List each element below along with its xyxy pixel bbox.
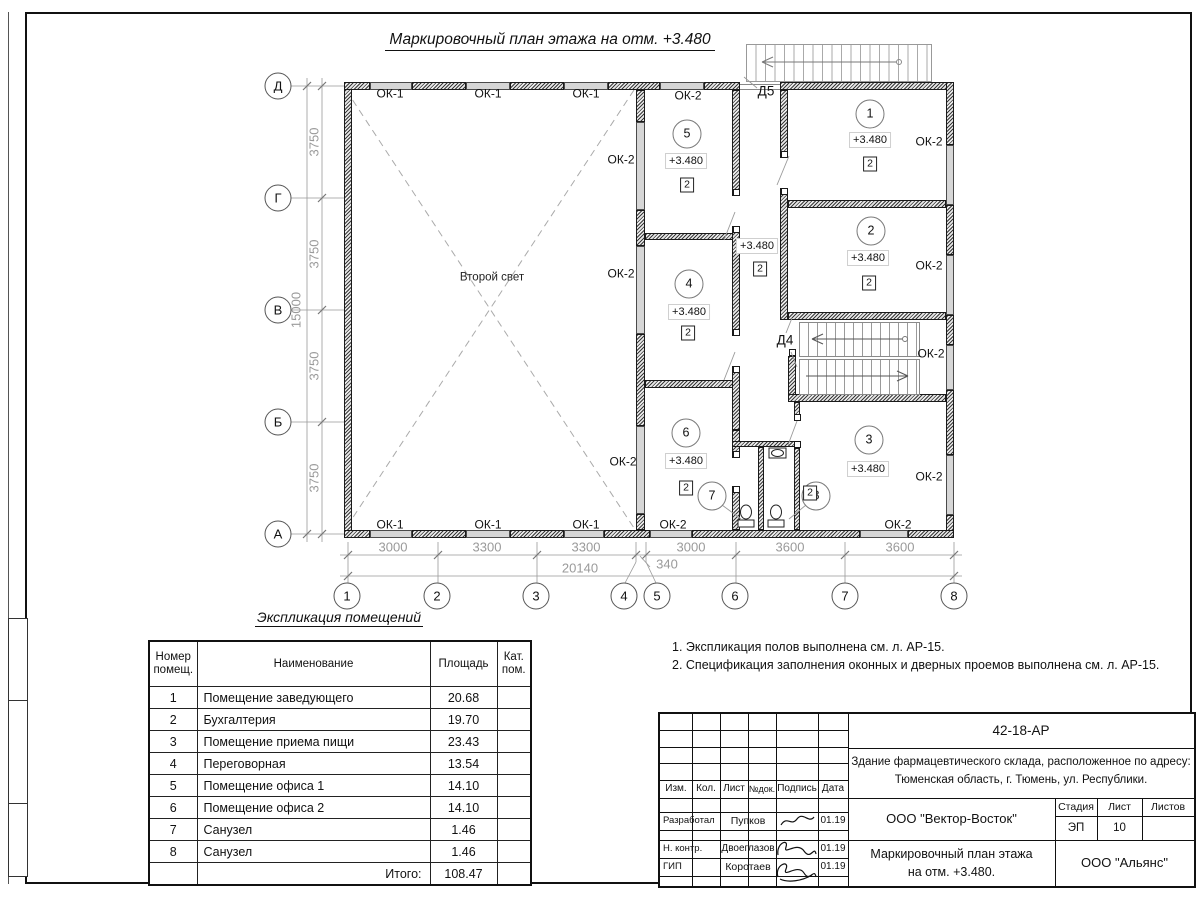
- room-number-cell: 6: [149, 797, 197, 819]
- frame-margin-cell: [8, 700, 28, 805]
- window-mark-label: ОК-2: [916, 471, 943, 484]
- wall-segment: [645, 233, 740, 240]
- door-mark-label: Д5: [758, 85, 775, 98]
- window-mark-label: ОК-1: [475, 519, 502, 532]
- door-mark-label: Д4: [777, 334, 794, 347]
- room-area-cell: 1.46: [430, 819, 497, 841]
- wall-segment: [636, 514, 645, 530]
- window-mark-label: ОК-1: [573, 519, 600, 532]
- room-name-cell: Помещение офиса 1: [197, 775, 430, 797]
- room-number-cell: 2: [149, 709, 197, 731]
- tb-name-developer: Пупков: [720, 812, 776, 830]
- dimension-value: 340: [656, 558, 678, 571]
- dimension-value: 3750: [308, 240, 321, 269]
- room-number-cell: 7: [149, 819, 197, 841]
- window-mark-label: ОК-2: [918, 348, 945, 361]
- tb-date-developer: 01.19: [818, 812, 848, 830]
- wall-segment: [645, 380, 740, 388]
- tb-address-line2: Тюменская область, г. Тюмень, ул. Респуб…: [850, 772, 1192, 788]
- room-number-cell: 1: [149, 687, 197, 709]
- table-total-row: Итого: 108.47: [149, 863, 531, 886]
- room-number-circle: 5: [673, 120, 702, 149]
- stair-flight-upper: [799, 322, 920, 357]
- window-mark-label: ОК-2: [660, 519, 687, 532]
- room-area-cell: 1.46: [430, 841, 497, 863]
- title-block: Изм. Кол. Лист №док. Подпись Дата Разраб…: [658, 712, 1196, 888]
- tb-address-line1: Здание фармацевтического склада, располо…: [850, 754, 1192, 770]
- room-area-cell: 23.43: [430, 731, 497, 753]
- tb-col-kol: Кол.: [692, 780, 720, 798]
- tb-col-data: Дата: [818, 780, 848, 798]
- room-category-cell: [497, 819, 531, 841]
- door-jamb: [789, 349, 796, 356]
- dimension-value: 15000: [290, 292, 303, 328]
- tb-date-gip: 01.19: [818, 858, 848, 876]
- wall-segment: [780, 90, 788, 158]
- dimension-value: 3000: [677, 541, 706, 554]
- elevation-mark: +3.480: [668, 304, 710, 320]
- table-header-row: Номер помещ. Наименование Площадь Кат. п…: [149, 641, 531, 687]
- dimension-value: 3300: [473, 541, 502, 554]
- stair-flight-lower: [799, 359, 920, 395]
- window-mark-label: ОК-1: [377, 519, 404, 532]
- axis-circle: 6: [722, 583, 749, 610]
- room-category-cell: [497, 797, 531, 819]
- tb-col-podpis: Подпись: [776, 780, 818, 798]
- window-segment: [946, 145, 954, 205]
- wall-segment: [758, 447, 764, 530]
- room-name-cell: Санузел: [197, 841, 430, 863]
- col-header-category: Кат. пом.: [497, 641, 531, 687]
- wall-segment: [704, 82, 740, 90]
- axis-circle: 5: [644, 583, 671, 610]
- room-number-circle: 2: [857, 217, 886, 246]
- tb-drawing-title-line1: Маркировочный план этажа: [848, 846, 1055, 862]
- room-number-cell: 5: [149, 775, 197, 797]
- room-category-cell: [497, 841, 531, 863]
- room-number-circle: 6: [672, 419, 701, 448]
- axis-circle: 8: [941, 583, 968, 610]
- axis-circle: Д: [265, 73, 292, 100]
- wall-segment: [780, 82, 954, 90]
- wall-segment: [344, 530, 370, 538]
- drawing-sheet: { "sheet": { "plan_title": "Маркировочны…: [0, 0, 1200, 900]
- room-category-cell: [497, 687, 531, 709]
- second-light-label: Второй свет: [457, 272, 527, 285]
- wall-segment: [732, 366, 740, 430]
- category-mark: 2: [863, 157, 877, 172]
- window-mark-label: ОК-2: [608, 154, 635, 167]
- wall-segment: [794, 448, 800, 530]
- signature: [772, 857, 818, 883]
- room-category-cell: [497, 753, 531, 775]
- wall-segment: [636, 90, 645, 122]
- wall-segment: [908, 530, 954, 538]
- door-jamb: [733, 226, 740, 233]
- tb-sheets-value: [1142, 816, 1194, 840]
- room-category-cell: [497, 731, 531, 753]
- window-mark-label: ОК-2: [675, 90, 702, 103]
- table-row: 4 Переговорная 13.54: [149, 753, 531, 775]
- window-mark-label: ОК-1: [573, 88, 600, 101]
- room-name-cell: Бухгалтерия: [197, 709, 430, 731]
- axis-circle: 2: [424, 583, 451, 610]
- tb-sheet-label: Лист: [1097, 798, 1142, 816]
- notes: 1. Экспликация полов выполнена см. л. АР…: [672, 639, 1200, 674]
- room-area-cell: 20.68: [430, 687, 497, 709]
- frame-margin-cell: [8, 618, 28, 702]
- wall-segment: [780, 188, 788, 320]
- room-schedule-table: Номер помещ. Наименование Площадь Кат. п…: [148, 640, 532, 886]
- tb-role-developer: Разработал: [660, 812, 720, 830]
- tb-stage-label: Стадия: [1055, 798, 1097, 816]
- window-mark-label: ОК-2: [916, 260, 943, 273]
- plan-title: Маркировочный план этажа на отм. +3.480: [340, 31, 760, 49]
- note-line: 2. Спецификация заполнения оконных и две…: [672, 657, 1200, 675]
- window-segment: [636, 426, 645, 514]
- window-mark-label: ОК-1: [475, 88, 502, 101]
- room-name-cell: Помещение приема пищи: [197, 731, 430, 753]
- room-area-cell: 14.10: [430, 775, 497, 797]
- wall-segment: [604, 530, 650, 538]
- tb-name-ncontrol: Двоеглазов: [720, 840, 776, 858]
- table-row: 2 Бухгалтерия 19.70: [149, 709, 531, 731]
- tb-sheet-value: 10: [1097, 816, 1142, 840]
- axis-circle: Б: [265, 409, 292, 436]
- door-jamb: [794, 414, 801, 421]
- door-jamb: [781, 188, 788, 195]
- window-segment: [636, 246, 645, 334]
- wall-segment: [692, 530, 860, 538]
- axis-circle: 7: [832, 583, 859, 610]
- wall-segment: [732, 441, 800, 447]
- tb-sheets-label: Листов: [1142, 798, 1194, 816]
- room-area-cell: 19.70: [430, 709, 497, 731]
- door-jamb: [733, 329, 740, 336]
- category-mark: 2: [680, 178, 694, 193]
- tb-company: ООО "Вектор-Восток": [848, 798, 1055, 840]
- col-header-area: Площадь: [430, 641, 497, 687]
- window-segment: [946, 345, 954, 390]
- table-row: 6 Помещение офиса 2 14.10: [149, 797, 531, 819]
- window-mark-label: ОК-2: [610, 456, 637, 469]
- window-mark-label: ОК-2: [885, 519, 912, 532]
- tb-org: ООО "Альянс": [1055, 840, 1194, 886]
- signature: [774, 836, 818, 859]
- total-area: 108.47: [430, 863, 497, 886]
- signature: [778, 813, 816, 829]
- tb-drawing-title-line2: на отм. +3.480.: [848, 864, 1055, 880]
- elevation-mark: +3.480: [847, 461, 889, 477]
- note-line: 1. Экспликация полов выполнена см. л. АР…: [672, 639, 1200, 657]
- wall-segment: [344, 82, 352, 538]
- window-segment: [946, 255, 954, 315]
- wall-segment: [788, 356, 796, 396]
- room-category-cell: [497, 709, 531, 731]
- door-jamb: [781, 151, 788, 158]
- room-number-circle: 7: [698, 482, 727, 511]
- axis-circle: В: [265, 297, 292, 324]
- table-row: 7 Санузел 1.46: [149, 819, 531, 841]
- wall-segment: [946, 82, 954, 145]
- room-area-cell: 14.10: [430, 797, 497, 819]
- room-number-circle: 1: [856, 100, 885, 129]
- table-row: 8 Санузел 1.46: [149, 841, 531, 863]
- dimension-value: 3750: [308, 128, 321, 157]
- elevation-mark: +3.480: [665, 153, 707, 169]
- wall-segment: [412, 82, 466, 90]
- window-mark-label: ОК-2: [916, 136, 943, 149]
- wall-segment: [636, 210, 645, 246]
- dimension-value: 3600: [886, 541, 915, 554]
- door-jamb: [733, 451, 740, 458]
- tb-col-ndok: №док.: [748, 780, 776, 798]
- category-mark: 2: [679, 481, 693, 496]
- room-area-cell: 13.54: [430, 753, 497, 775]
- wall-segment: [788, 200, 946, 208]
- axis-circle: А: [265, 521, 292, 548]
- category-mark: 2: [753, 262, 767, 277]
- dimension-value: 3750: [308, 352, 321, 381]
- col-header-number: Номер помещ.: [149, 641, 197, 687]
- empty-cell: [497, 863, 531, 886]
- tb-role-ncontrol: Н. контр.: [660, 840, 720, 858]
- door-jamb: [733, 486, 740, 493]
- wall-segment: [732, 90, 740, 196]
- wall-segment: [636, 334, 645, 426]
- door-jamb: [733, 189, 740, 196]
- window-mark-label: ОК-1: [377, 88, 404, 101]
- wall-segment: [412, 530, 466, 538]
- axis-circle: 1: [334, 583, 361, 610]
- room-number-cell: 3: [149, 731, 197, 753]
- col-header-name: Наименование: [197, 641, 430, 687]
- wall-segment: [608, 82, 660, 90]
- wall-segment: [946, 315, 954, 345]
- external-stair: [746, 44, 932, 82]
- door-jamb: [733, 366, 740, 373]
- room-number-circle: 3: [855, 426, 884, 455]
- wall-segment: [510, 530, 564, 538]
- wall-segment: [510, 82, 564, 90]
- room-number-cell: 4: [149, 753, 197, 775]
- elevation-mark: +3.480: [847, 250, 889, 266]
- window-segment: [946, 455, 954, 515]
- tb-role-gip: ГИП: [660, 858, 720, 876]
- wall-segment: [946, 390, 954, 455]
- category-mark: 2: [862, 276, 876, 291]
- empty-cell: [149, 863, 197, 886]
- room-name-cell: Санузел: [197, 819, 430, 841]
- wall-segment: [344, 82, 370, 90]
- wall-segment: [788, 394, 946, 402]
- elevation-mark: +3.480: [736, 238, 778, 254]
- room-name-cell: Помещение заведующего: [197, 687, 430, 709]
- wall-segment: [788, 312, 946, 320]
- dimension-value: 3750: [308, 464, 321, 493]
- dimension-value: 20140: [562, 562, 598, 575]
- tb-stage-value: ЭП: [1055, 816, 1097, 840]
- elevation-mark: +3.480: [849, 132, 891, 148]
- tb-doc-number: 42-18-АР: [848, 714, 1194, 748]
- axis-circle: 3: [523, 583, 550, 610]
- table-row: 1 Помещение заведующего 20.68: [149, 687, 531, 709]
- tb-name-gip: Коротаев: [720, 858, 776, 876]
- window-segment: [636, 122, 645, 210]
- table-row: 3 Помещение приема пищи 23.43: [149, 731, 531, 753]
- tb-col-izm: Изм.: [660, 780, 692, 798]
- dimension-value: 3000: [379, 541, 408, 554]
- door-jamb: [794, 441, 801, 448]
- room-category-cell: [497, 775, 531, 797]
- axis-circle: Г: [265, 185, 292, 212]
- category-mark: 2: [681, 326, 695, 341]
- table-row: 5 Помещение офиса 1 14.10: [149, 775, 531, 797]
- frame-margin-cell: [8, 803, 28, 877]
- tb-col-list: Лист: [720, 780, 748, 798]
- room-name-cell: Помещение офиса 2: [197, 797, 430, 819]
- dimension-value: 3300: [572, 541, 601, 554]
- room-number-cell: 8: [149, 841, 197, 863]
- axis-circle: 4: [611, 583, 638, 610]
- tb-date-ncontrol: 01.19: [818, 840, 848, 858]
- category-mark: 2: [803, 486, 817, 501]
- room-name-cell: Переговорная: [197, 753, 430, 775]
- wall-segment: [946, 205, 954, 255]
- total-label: Итого:: [197, 863, 430, 886]
- room-schedule-title: Экспликация помещений: [148, 609, 530, 627]
- elevation-mark: +3.480: [665, 453, 707, 469]
- window-mark-label: ОК-2: [608, 268, 635, 281]
- dimension-value: 3600: [776, 541, 805, 554]
- room-number-circle: 4: [675, 270, 704, 299]
